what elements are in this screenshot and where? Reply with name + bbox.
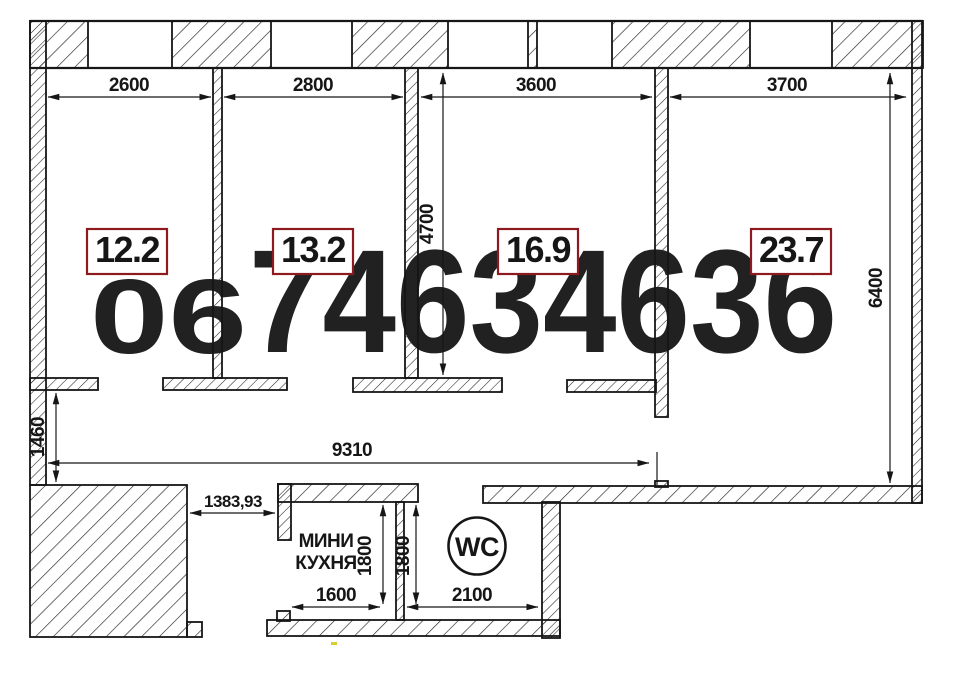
dim-label-room2-width: 2800 (293, 75, 333, 96)
floor-plan-image: 06 74634636 (0, 0, 955, 699)
kitchen-top-wall (278, 484, 418, 502)
corridor-wall (483, 486, 922, 503)
kitchen-left-stub (278, 484, 291, 540)
room4-area-label: 23.7 (759, 229, 824, 270)
floor-plan-drawing: 06 74634636 (0, 0, 955, 699)
left-exterior-wall (30, 21, 46, 485)
wc-symbol: WC (449, 518, 506, 575)
wall-stub (567, 380, 656, 392)
kitchen-label-line2: КУХНЯ (295, 553, 356, 574)
dim-label-wc-width: 2100 (452, 585, 492, 606)
kitchen-label-line1: МИНИ (299, 531, 354, 552)
dim-label-room4-depth: 6400 (866, 268, 887, 308)
kitchen-bottom-wall (267, 620, 560, 636)
window-mullion (528, 21, 537, 68)
dim-label-hall-offset: 1460 (28, 417, 49, 457)
dim-label-hall-length: 9310 (332, 440, 372, 461)
dim-label-hall-gap: 1383,93 (204, 492, 262, 511)
dim-label-room3-width: 3600 (516, 75, 556, 96)
wall-pier (832, 21, 923, 68)
wall-pier (352, 21, 448, 68)
dim-label-room4-width: 3700 (767, 75, 807, 96)
wall-pier (172, 21, 271, 68)
dim-label-wc-depth: 1800 (393, 536, 414, 576)
room1-area-label: 12.2 (95, 229, 160, 270)
dim-label-kitchen-width: 1600 (316, 585, 356, 606)
wall-stub (30, 378, 98, 390)
dim-label-room3-depth: 4700 (417, 204, 438, 244)
room2-area-label: 13.2 (281, 229, 346, 270)
wc-right-wall (542, 502, 560, 638)
wc-label: WC (455, 532, 499, 562)
dim-label-room1-width: 2600 (109, 75, 149, 96)
dim-label-kitchen-depth: 1800 (355, 536, 376, 576)
wall-stub (163, 378, 287, 390)
stair-block-step (187, 622, 202, 637)
wall-stub (353, 378, 502, 392)
stair-block (30, 485, 187, 637)
watermark-digits-dark: 06 (90, 258, 247, 376)
wall-pier (612, 21, 750, 68)
room-divider-wall (213, 68, 222, 378)
room-divider-wall (655, 68, 668, 417)
wall-lip (277, 611, 290, 621)
right-exterior-wall (912, 21, 922, 503)
phone-watermark: 06 74634636 (90, 220, 837, 384)
room3-area-label: 16.9 (506, 229, 571, 270)
scan-speck (331, 642, 337, 645)
